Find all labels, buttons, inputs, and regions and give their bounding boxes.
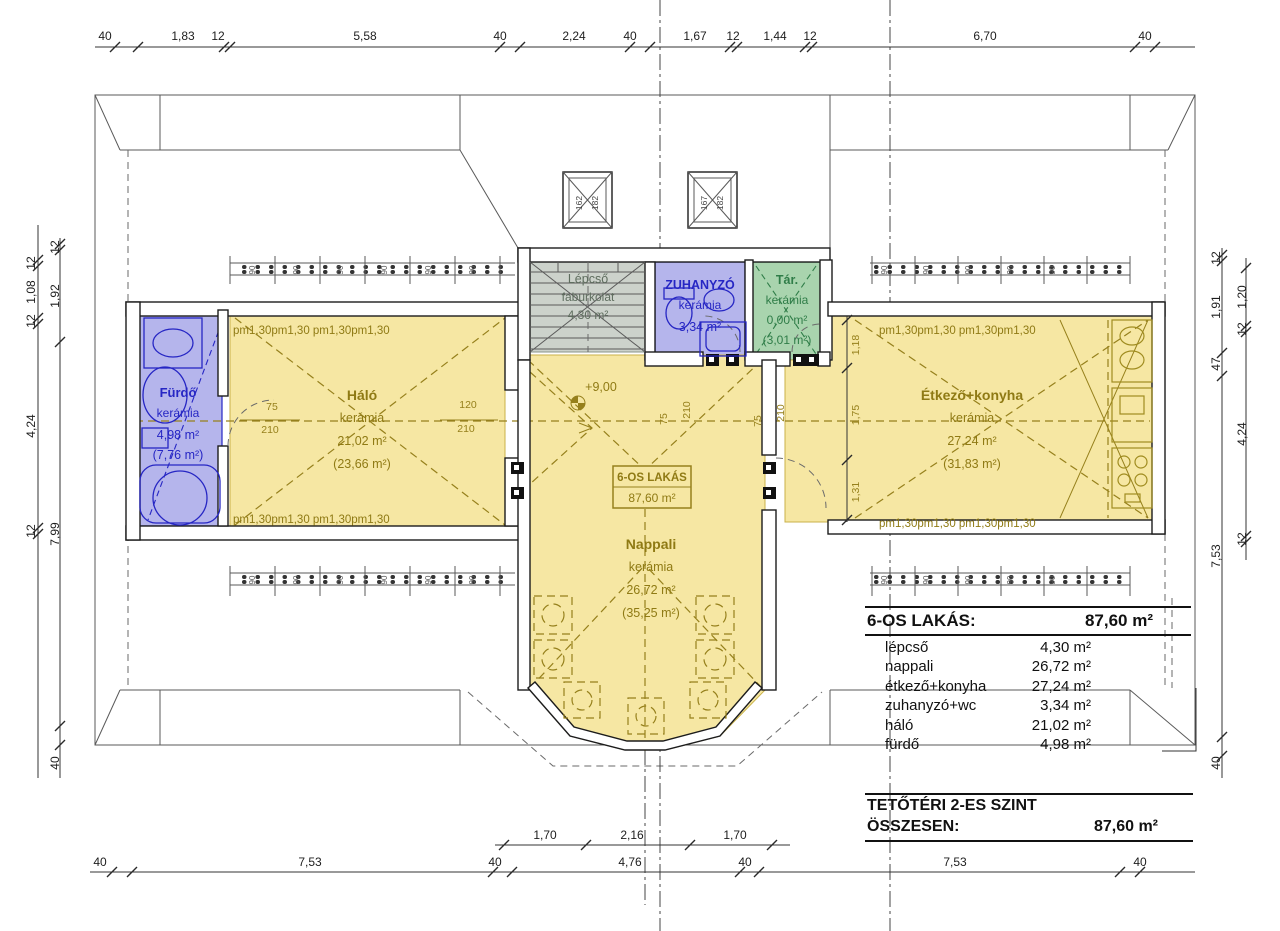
dim-chain-right-outer: 12 1,91 47 7,53 40 [1209,248,1227,778]
svg-text:90: 90 [380,575,389,584]
summary-row-label: zuhanyzó+wc [885,697,981,714]
svg-text:1,08: 1,08 [24,280,38,304]
unit-area: 87,60 m² [628,491,675,505]
svg-text:1,70: 1,70 [533,828,557,842]
summary-footer-row: ÖSSZESEN: 87,60 m² [867,818,1193,836]
dim-chain-bottom-outer: 40 7,53 40 4,76 40 7,53 40 [90,855,1195,877]
svg-text:pm1,30pm1,30 pm1,30pm1,30: pm1,30pm1,30 pm1,30pm1,30 [233,514,390,526]
svg-text:2,24: 2,24 [562,29,586,43]
svg-text:Nappali: Nappali [626,536,677,552]
svg-text:Étkező+konyha: Étkező+konyha [921,387,1024,403]
dim-chain-bottom-inner: 1,70 2,16 1,70 [495,828,790,850]
svg-text:40: 40 [493,29,507,43]
svg-text:90: 90 [336,265,345,274]
svg-text:90: 90 [248,265,257,274]
table-row: lépcső 4,30 m² [865,636,1191,656]
svg-text:210: 210 [457,423,475,435]
svg-text:27,24 m²: 27,24 m² [947,434,996,448]
chimney-right-dim-a: 167 [699,196,709,210]
table-row: fürdő 4,98 m² [865,734,1191,754]
svg-text:faburkolat: faburkolat [562,290,615,304]
svg-text:12: 12 [726,29,740,43]
svg-text:75: 75 [658,413,670,425]
svg-text:90: 90 [336,575,345,584]
table-row: étkező+konyha 27,24 m² [865,675,1191,695]
svg-text:1,92: 1,92 [48,284,62,308]
svg-text:90: 90 [468,575,477,584]
summary-title-value: 87,60 m² [1085,611,1153,631]
svg-text:kerámia: kerámia [157,406,200,420]
dim-chain-left-inner: 12 1,08 12 4,24 12 [24,225,43,778]
svg-text:(3,01 m²): (3,01 m²) [763,333,812,347]
svg-text:12: 12 [1235,322,1249,336]
svg-text:pm1,30pm1,30 pm1,30pm1,30: pm1,30pm1,30 pm1,30pm1,30 [879,325,1036,337]
svg-text:12: 12 [211,29,225,43]
chimney-right-dim-b: 182 [715,196,725,210]
summary-row-value: 3,34 m² [981,697,1091,714]
svg-text:90: 90 [1048,265,1057,274]
room-label-lepcso: Lépcső faburkolat 4,30 m² [562,272,615,322]
svg-text:75: 75 [752,415,764,427]
svg-text:40: 40 [488,855,502,869]
chimney-left-dim-a: 162 [574,196,584,210]
level-mark-label: +9,00 [585,380,617,394]
svg-text:12: 12 [24,256,38,270]
svg-text:210: 210 [681,401,693,419]
summary-row-label: háló [885,717,981,734]
svg-text:40: 40 [93,855,107,869]
svg-text:0,00 m²: 0,00 m² [767,313,808,327]
svg-text:5,58: 5,58 [353,29,377,43]
svg-text:90: 90 [880,265,889,274]
svg-text:7,53: 7,53 [298,855,322,869]
svg-text:40: 40 [98,29,112,43]
svg-text:90: 90 [922,265,931,274]
summary-row-label: étkező+konyha [885,678,986,695]
table-row: háló 21,02 m² [865,714,1191,734]
summary-row-value: 21,02 m² [981,717,1091,734]
svg-text:90: 90 [880,575,889,584]
table-row: zuhanyzó+wc 3,34 m² [865,695,1191,715]
svg-text:(7,76 m²): (7,76 m²) [153,448,204,462]
area-summary-table: 6-OS LAKÁS: 87,60 m² lépcső 4,30 m² napp… [865,606,1191,753]
unit-label-box: 6-OS LAKÁS 87,60 m² [613,466,691,508]
svg-text:4,24: 4,24 [24,414,38,438]
svg-text:47: 47 [1209,357,1223,371]
table-row: nappali 26,72 m² [865,656,1191,676]
svg-text:Fürdő: Fürdő [160,385,197,400]
svg-text:2,16: 2,16 [620,828,644,842]
svg-text:40: 40 [738,855,752,869]
svg-text:7,53: 7,53 [943,855,967,869]
svg-text:pm1,30pm1,30 pm1,30pm1,30: pm1,30pm1,30 pm1,30pm1,30 [879,518,1036,530]
summary-title: 6-OS LAKÁS: [867,611,976,631]
summary-row-label: nappali [885,658,981,675]
svg-text:1,20: 1,20 [1235,285,1249,309]
summary-row-label: fürdő [885,736,981,753]
svg-text:90: 90 [1048,575,1057,584]
summary-row-value: 26,72 m² [981,658,1091,675]
svg-text:120: 120 [459,399,477,411]
svg-text:21,02 m²: 21,02 m² [337,434,386,448]
svg-text:1,83: 1,83 [171,29,195,43]
svg-text:40: 40 [1138,29,1152,43]
svg-text:1,75: 1,75 [850,405,862,426]
svg-text:26,72 m²: 26,72 m² [626,583,675,597]
summary-footer-label: ÖSSZESEN: [867,818,959,836]
svg-text:4,76: 4,76 [618,855,642,869]
svg-text:1,18: 1,18 [850,335,862,356]
svg-text:ZUHANYZÓ: ZUHANYZÓ [665,277,735,292]
svg-text:(31,83 m²): (31,83 m²) [943,457,1001,471]
svg-text:kerámia: kerámia [629,560,674,574]
svg-text:40: 40 [48,756,62,770]
svg-text:Háló: Háló [347,387,377,403]
svg-text:(23,66 m²): (23,66 m²) [333,457,391,471]
summary-title-row: 6-OS LAKÁS: 87,60 m² [865,606,1191,636]
svg-text:4,24: 4,24 [1235,422,1249,446]
svg-text:210: 210 [775,404,787,422]
svg-text:90: 90 [292,265,301,274]
svg-text:90: 90 [292,575,301,584]
summary-row-label: lépcső [885,639,981,656]
svg-text:1,70: 1,70 [723,828,747,842]
svg-text:4,30 m²: 4,30 m² [568,308,609,322]
room-nappali-fill [520,355,765,750]
svg-text:12: 12 [803,29,817,43]
floor-plan-page: 162 182 167 182 90 90 90 90 90 90 90 90 … [0,0,1280,931]
svg-text:40: 40 [1209,756,1223,770]
svg-text:210: 210 [261,424,279,436]
svg-text:90: 90 [380,265,389,274]
summary-footer: TETŐTÉRI 2-ES SZINT ÖSSZESEN: 87,60 m² [865,793,1193,842]
svg-text:40: 40 [623,29,637,43]
svg-text:7,53: 7,53 [1209,544,1223,568]
svg-text:4,98 m²: 4,98 m² [157,428,199,442]
svg-text:(35,25 m²): (35,25 m²) [622,606,680,620]
chimneys: 162 182 167 182 [563,172,737,228]
svg-text:12: 12 [24,524,38,538]
svg-text:1,44: 1,44 [763,29,787,43]
svg-text:kerámia: kerámia [340,411,385,425]
svg-text:Tár.: Tár. [776,273,798,287]
svg-text:90: 90 [424,265,433,274]
svg-text:12: 12 [48,240,62,254]
svg-text:90: 90 [922,575,931,584]
svg-text:90: 90 [248,575,257,584]
svg-text:90: 90 [964,575,973,584]
svg-text:kerámia: kerámia [766,293,809,307]
svg-text:6,70: 6,70 [973,29,997,43]
dim-chain-left-outer: 12 1,92 7,99 40 [48,238,65,778]
svg-text:1,31: 1,31 [850,482,862,503]
svg-text:kerámia: kerámia [679,298,722,312]
svg-text:90: 90 [1006,575,1015,584]
svg-text:12: 12 [1209,251,1223,265]
summary-row-value: 4,98 m² [981,736,1091,753]
chimney-left-dim-b: 182 [590,196,600,210]
dim-chain-top: 40 1,83 12 5,58 40 2,24 40 1,67 12 1,44 … [95,29,1195,52]
svg-text:12: 12 [1235,532,1249,546]
svg-text:90: 90 [424,575,433,584]
svg-text:12: 12 [24,314,38,328]
unit-name: 6-OS LAKÁS [617,471,687,484]
svg-text:90: 90 [1006,265,1015,274]
summary-footer-value: 87,60 m² [1094,818,1158,836]
summary-row-value: 4,30 m² [981,639,1091,656]
svg-text:7,99: 7,99 [48,522,62,546]
svg-text:90: 90 [964,265,973,274]
svg-text:90: 90 [468,265,477,274]
svg-text:3,34 m²: 3,34 m² [679,320,721,334]
svg-text:kerámia: kerámia [950,411,995,425]
svg-text:1,67: 1,67 [683,29,707,43]
dim-chain-right-inner: 1,20 12 4,24 12 [1235,258,1251,560]
svg-text:pm1,30pm1,30 pm1,30pm1,30: pm1,30pm1,30 pm1,30pm1,30 [233,325,390,337]
svg-text:Lépcső: Lépcső [568,272,608,286]
summary-footer-title: TETŐTÉRI 2-ES SZINT [867,797,1193,815]
svg-text:1,91: 1,91 [1209,295,1223,319]
svg-text:40: 40 [1133,855,1147,869]
svg-text:75: 75 [266,401,278,413]
summary-row-value: 27,24 m² [986,678,1091,695]
floor-plan-drawing: 162 182 167 182 90 90 90 90 90 90 90 90 … [0,0,1280,931]
